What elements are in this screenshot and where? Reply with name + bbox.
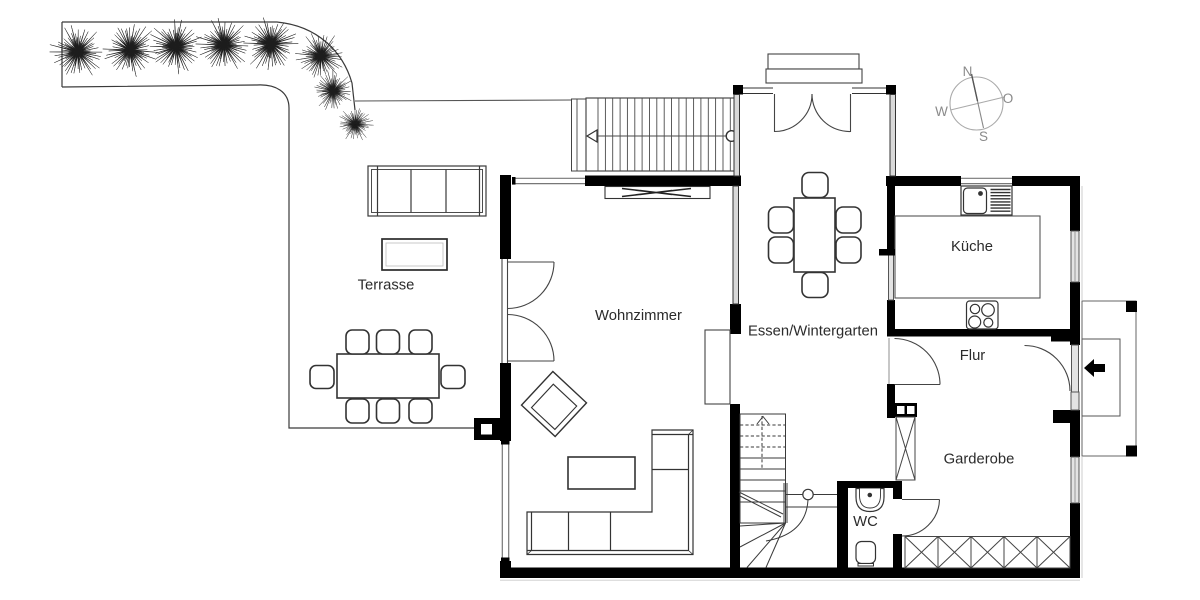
svg-text:Flur: Flur [960,348,986,364]
svg-text:W: W [935,104,948,119]
svg-text:Wohnzimmer: Wohnzimmer [595,308,682,324]
svg-text:S: S [979,129,988,144]
svg-text:Terrasse: Terrasse [358,278,415,294]
svg-text:Küche: Küche [951,239,993,255]
svg-text:Essen/Wintergarten: Essen/Wintergarten [748,324,878,340]
svg-text:Garderobe: Garderobe [944,452,1015,468]
svg-text:O: O [1003,91,1014,106]
svg-text:WC: WC [853,514,878,530]
svg-text:N: N [963,64,973,79]
